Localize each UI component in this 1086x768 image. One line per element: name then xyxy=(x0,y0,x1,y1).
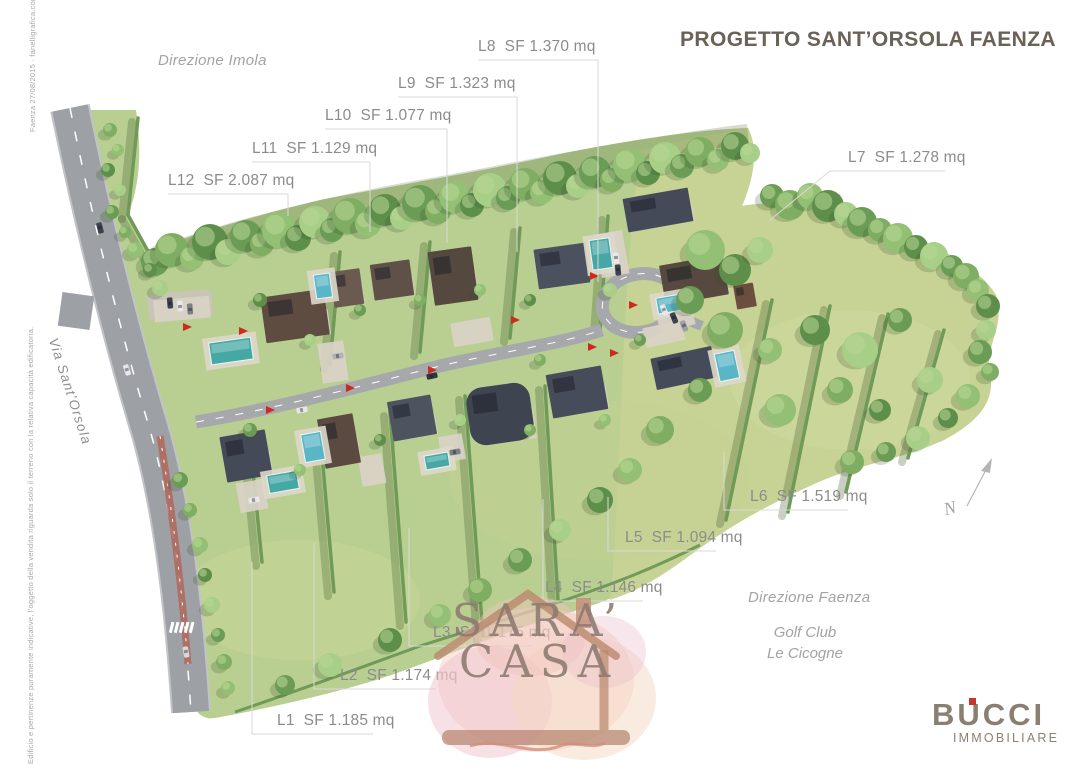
logo-subtitle: IMMOBILIARE xyxy=(932,731,1068,745)
logo-red-square-icon xyxy=(969,698,976,705)
lot-area: SF 1.129 mq xyxy=(286,140,377,157)
logo-brand: BUCCI xyxy=(932,699,1068,730)
lot-area: SF 1.185 mq xyxy=(304,712,395,729)
lot-label-l11: L11SF 1.129 mq xyxy=(252,140,377,158)
lot-id: L10 xyxy=(325,107,351,124)
roof-panel xyxy=(374,267,391,281)
roof-panel xyxy=(433,256,452,275)
logo-name: BUCCI xyxy=(932,697,1045,732)
disclaimer-note: Edificio e pertinenze puramente indicati… xyxy=(26,327,35,764)
direction-imola-label: Direzione Imola xyxy=(158,52,267,69)
roof-panel xyxy=(472,392,499,414)
lot-id: L6 xyxy=(750,488,768,505)
lot-id: L3 xyxy=(433,624,451,641)
direction-faenza-label: Direzione Faenza xyxy=(748,589,870,606)
lot-label-l3: L3SF 1.175 mq xyxy=(433,624,551,642)
driveway xyxy=(317,340,348,383)
lot-label-l10: L10SF 1.077 mq xyxy=(325,107,451,125)
lot-area: SF 1.094 mq xyxy=(652,529,743,546)
lot-id: L12 xyxy=(168,172,194,189)
lot-area: SF 1.077 mq xyxy=(360,107,451,124)
lot-id: L4 xyxy=(545,579,563,596)
roof-panel xyxy=(736,287,745,296)
lot-label-l2: L2SF 1.174 mq xyxy=(340,667,458,685)
site-plan-page: PROGETTO SANT’ORSOLA FAENZA Direzione Im… xyxy=(0,0,1086,768)
golf-club-line1: Golf Club xyxy=(740,622,870,643)
lot-label-l1: L1SF 1.185 mq xyxy=(277,712,395,730)
driveway xyxy=(358,453,387,487)
bucci-logo: BUCCI IMMOBILIARE xyxy=(932,699,1068,745)
roof-panel xyxy=(539,251,560,266)
lot-id: L11 xyxy=(252,140,277,157)
lot-label-l4: L4SF 1.146 mq xyxy=(545,579,663,597)
lot-label-l12: L12SF 2.087 mq xyxy=(168,172,294,190)
lot-id: L8 xyxy=(478,38,496,55)
lot-label-l5: L5SF 1.094 mq xyxy=(625,529,743,547)
lot-label-l6: L6SF 1.519 mq xyxy=(750,488,868,506)
lot-label-l7: L7SF 1.278 mq xyxy=(848,149,966,167)
roof-panel xyxy=(225,439,245,457)
lot-area: SF 1.174 mq xyxy=(367,667,458,684)
page-title: PROGETTO SANT’ORSOLA FAENZA xyxy=(680,28,1056,52)
lot-area: SF 1.146 mq xyxy=(572,579,663,596)
north-arrow-icon xyxy=(967,458,992,506)
golf-club-label: Golf Club Le Cicogne xyxy=(740,622,870,664)
lot-label-l8: L8SF 1.370 mq xyxy=(478,38,596,56)
lot-id: L7 xyxy=(848,149,866,166)
lot-area: SF 2.087 mq xyxy=(203,172,294,189)
lot-id: L9 xyxy=(398,75,416,92)
credit-note: Faenza 27/08/2015 · fanelligrafica.com xyxy=(28,0,37,132)
lot-area: SF 1.519 mq xyxy=(777,488,868,505)
lot-label-l9: L9SF 1.323 mq xyxy=(398,75,516,93)
golf-club-line2: Le Cicogne xyxy=(740,643,870,664)
lot-area: SF 1.370 mq xyxy=(505,38,596,55)
lot-id: L1 xyxy=(277,712,295,729)
lot-area: SF 1.175 mq xyxy=(460,624,551,641)
lot-id: L5 xyxy=(625,529,643,546)
site-plan-map xyxy=(0,0,1086,768)
lot-area: SF 1.323 mq xyxy=(425,75,516,92)
lot-area: SF 1.278 mq xyxy=(875,149,966,166)
lot-id: L2 xyxy=(340,667,358,684)
